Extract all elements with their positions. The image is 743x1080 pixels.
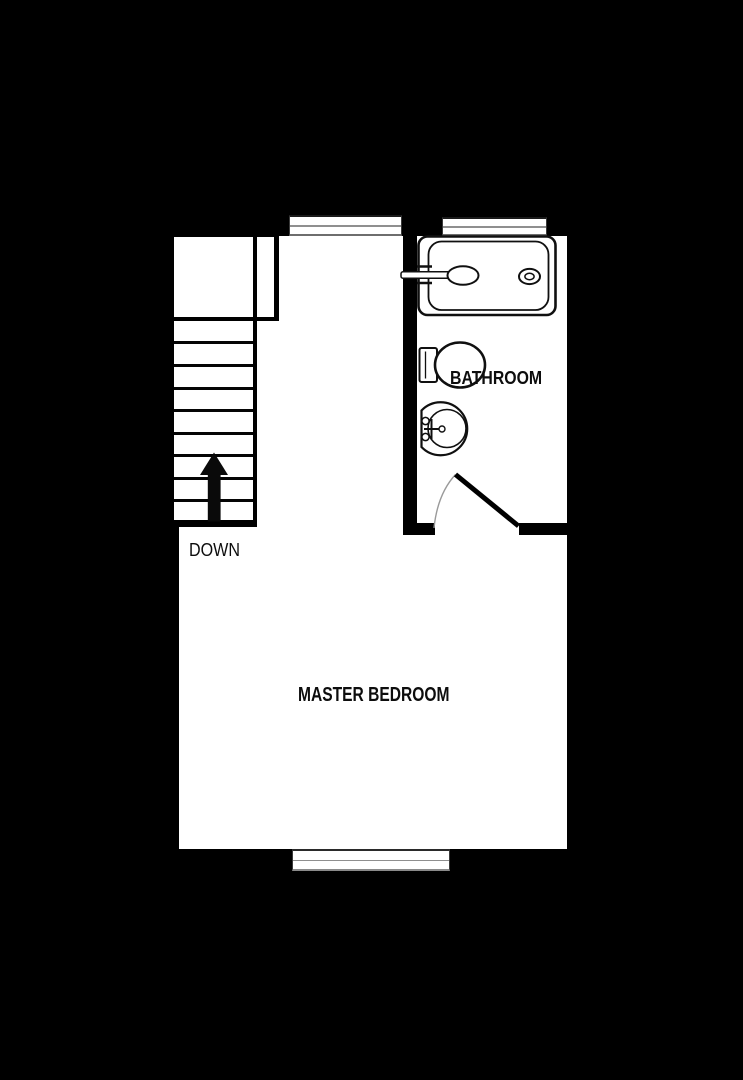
- window-bottom: [292, 849, 450, 871]
- door-leaf: [456, 475, 519, 527]
- stair-tread-line: [174, 387, 253, 390]
- master-bedroom-label: MASTER BEDROOM: [298, 687, 449, 703]
- stair-tread-line: [174, 341, 253, 344]
- sink-icon: [422, 402, 468, 455]
- up-arrow-icon: [198, 450, 232, 524]
- stair-landing-floor: [174, 237, 253, 317]
- door-swing-arc-icon: [434, 475, 456, 529]
- window-pane-line: [290, 225, 401, 227]
- stair-upper-flight: [257, 237, 274, 317]
- stair-tread-line: [174, 432, 253, 435]
- floor-plan-canvas: BATHROOM MASTER BEDROOM DOWN: [0, 0, 743, 1080]
- down-label: DOWN: [189, 542, 240, 557]
- understairs-floor: [179, 527, 257, 535]
- window-top-left: [289, 215, 402, 236]
- window-pane-line: [293, 860, 449, 862]
- stair-tread-line: [174, 409, 253, 412]
- hall-floor-upper: [279, 236, 404, 322]
- bathroom-label: BATHROOM: [450, 371, 542, 385]
- hall-floor: [257, 321, 403, 535]
- stair-tread-line: [174, 364, 253, 367]
- tub-drain-icon: [519, 269, 540, 284]
